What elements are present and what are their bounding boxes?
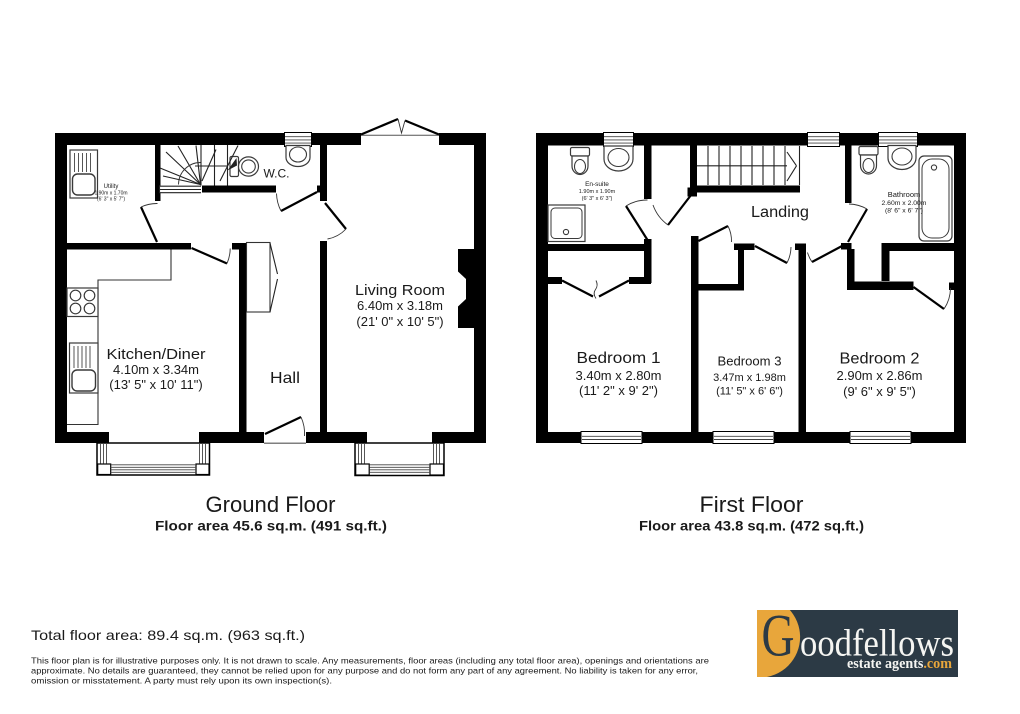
svg-text:1.90m x 1.90m: 1.90m x 1.90m [579, 189, 616, 195]
svg-text:omission or misstatement. A pa: omission or misstatement. A party must r… [31, 676, 332, 686]
svg-text:(13' 5" x 10' 11"): (13' 5" x 10' 11") [109, 377, 202, 392]
svg-text:G: G [762, 603, 795, 669]
svg-text:2.60m x 2.00m: 2.60m x 2.00m [882, 200, 927, 207]
svg-text:First Floor: First Floor [700, 492, 804, 517]
svg-text:W.C.: W.C. [264, 167, 290, 181]
svg-text:Kitchen/Diner: Kitchen/Diner [107, 346, 206, 363]
svg-text:Bedroom 1: Bedroom 1 [577, 350, 661, 367]
svg-text:3.47m x 1.98m: 3.47m x 1.98m [713, 372, 786, 384]
svg-text:Bedroom 3: Bedroom 3 [718, 355, 782, 369]
svg-text:3.40m x 2.80m: 3.40m x 2.80m [576, 368, 662, 383]
svg-text:Living Room: Living Room [355, 282, 445, 299]
svg-text:2.90m x 2.86m: 2.90m x 2.86m [837, 368, 923, 383]
svg-text:Floor area 43.8 sq.m. (472 sq.: Floor area 43.8 sq.m. (472 sq.ft.) [639, 519, 864, 534]
svg-text:Total floor area: 89.4 sq.m. (: Total floor area: 89.4 sq.m. (963 sq.ft.… [31, 627, 305, 643]
svg-text:(9' 6" x 9' 5"): (9' 6" x 9' 5") [843, 384, 916, 399]
svg-text:Bedroom 2: Bedroom 2 [840, 351, 920, 368]
svg-text:(11' 5" x 6' 6"): (11' 5" x 6' 6") [716, 386, 783, 398]
svg-text:Utility: Utility [104, 184, 119, 190]
svg-text:approximate. No details are gu: approximate. No details are guaranteed, … [31, 666, 698, 676]
svg-text:En-suite: En-suite [585, 181, 609, 188]
svg-text:Floor area 45.6 sq.m. (491 sq.: Floor area 45.6 sq.m. (491 sq.ft.) [155, 519, 387, 534]
svg-text:Landing: Landing [751, 204, 809, 221]
svg-text:6.40m x 3.18m: 6.40m x 3.18m [357, 298, 443, 313]
svg-text:Hall: Hall [270, 370, 300, 387]
svg-text:estate agents.com: estate agents.com [847, 656, 952, 672]
svg-text:Bathroom: Bathroom [888, 190, 921, 199]
svg-text:This floor plan is for illustr: This floor plan is for illustrative purp… [31, 656, 709, 666]
svg-text:Ground Floor: Ground Floor [206, 492, 336, 517]
svg-text:(21' 0" x 10' 5"): (21' 0" x 10' 5") [356, 314, 443, 329]
svg-text:(11' 2" x 9' 2"): (11' 2" x 9' 2") [579, 383, 658, 398]
svg-text:(8' 6" x 6' 7"): (8' 6" x 6' 7") [885, 208, 923, 215]
svg-text:(6' 3" x 6' 3"): (6' 3" x 6' 3") [582, 196, 613, 202]
svg-text:4.10m x 3.34m: 4.10m x 3.34m [113, 362, 199, 377]
svg-text:(6' 3" x 5' 7"): (6' 3" x 5' 7") [97, 197, 125, 203]
